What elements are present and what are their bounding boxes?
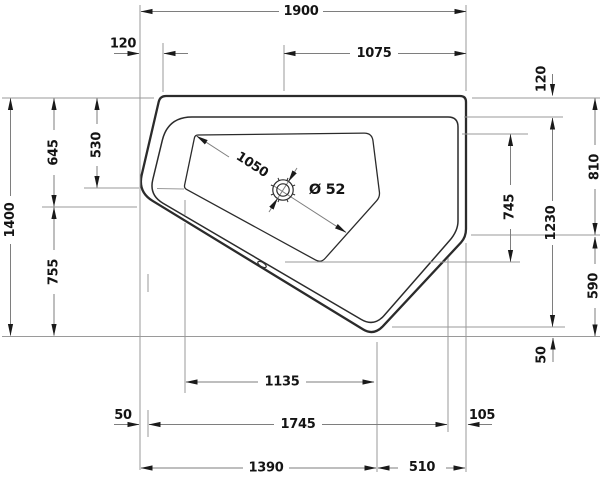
dim-bottom-left-span: 1390 — [141, 461, 376, 476]
dim-overall-depth: 1400 — [3, 99, 18, 336]
dim-bottom-left-span-label: 1390 — [249, 461, 284, 476]
dim-inner-right: 1230 — [544, 118, 559, 327]
dim-right-lower-label: 590 — [587, 273, 602, 299]
dim-rim-bottom-right: 50 — [535, 338, 554, 364]
dim-rim-left-bottom: 50 — [114, 408, 139, 425]
dim-basin-width-label: 1135 — [265, 375, 300, 390]
dim-right-upper: 810 — [588, 99, 603, 235]
dim-left-lower-label: 755 — [47, 259, 62, 285]
drain-diameter-label: Ø 52 — [309, 182, 345, 198]
dim-basin-depth: 745 — [503, 135, 518, 262]
dim-bottom-right-offset-label: 105 — [469, 408, 495, 423]
dim-basin-width: 1135 — [186, 375, 374, 390]
bathtub-dimension-drawing: 1900 120 1075 1400 645 530 755 120 12 — [0, 0, 607, 480]
dim-rim-left-bottom-label: 50 — [114, 408, 132, 423]
dim-bottom-right-span-label: 510 — [409, 460, 435, 475]
dim-drain-to-right-edge: 1075 — [284, 46, 466, 61]
bathtub-outline-group — [141, 96, 466, 332]
dim-basin-left-top: 530 — [90, 99, 105, 188]
technical-drawing-page: 1900 120 1075 1400 645 530 755 120 12 — [0, 0, 607, 480]
dim-left-upper-label: 645 — [47, 139, 62, 165]
dim-rim-top-right-label: 120 — [535, 66, 550, 92]
dim-top-left-offset-label: 120 — [110, 37, 136, 52]
dim-inner-width: 1745 — [149, 417, 447, 432]
dim-inner-width-label: 1745 — [281, 417, 316, 432]
dim-rim-top-right: 120 — [535, 66, 553, 96]
dim-inner-right-label: 1230 — [544, 205, 559, 240]
dim-left-upper: 645 — [47, 99, 62, 207]
dim-overall-depth-label: 1400 — [3, 202, 18, 237]
dim-bottom-right-offset: 105 — [468, 408, 495, 425]
dim-right-lower: 590 — [587, 237, 602, 336]
dim-overall-width: 1900 — [141, 4, 466, 19]
dim-rim-bottom-right-label: 50 — [535, 346, 550, 364]
dim-basin-left-top-label: 530 — [90, 132, 105, 158]
dim-overall-width-label: 1900 — [284, 4, 319, 19]
dim-top-left-offset: 120 — [110, 37, 188, 54]
dim-right-upper-label: 810 — [588, 154, 603, 180]
dim-drain-to-right-edge-label: 1075 — [357, 46, 392, 61]
dim-basin-depth-label: 745 — [503, 194, 518, 220]
dim-bottom-right-span: 510 — [378, 460, 465, 475]
dim-left-lower: 755 — [47, 208, 62, 336]
